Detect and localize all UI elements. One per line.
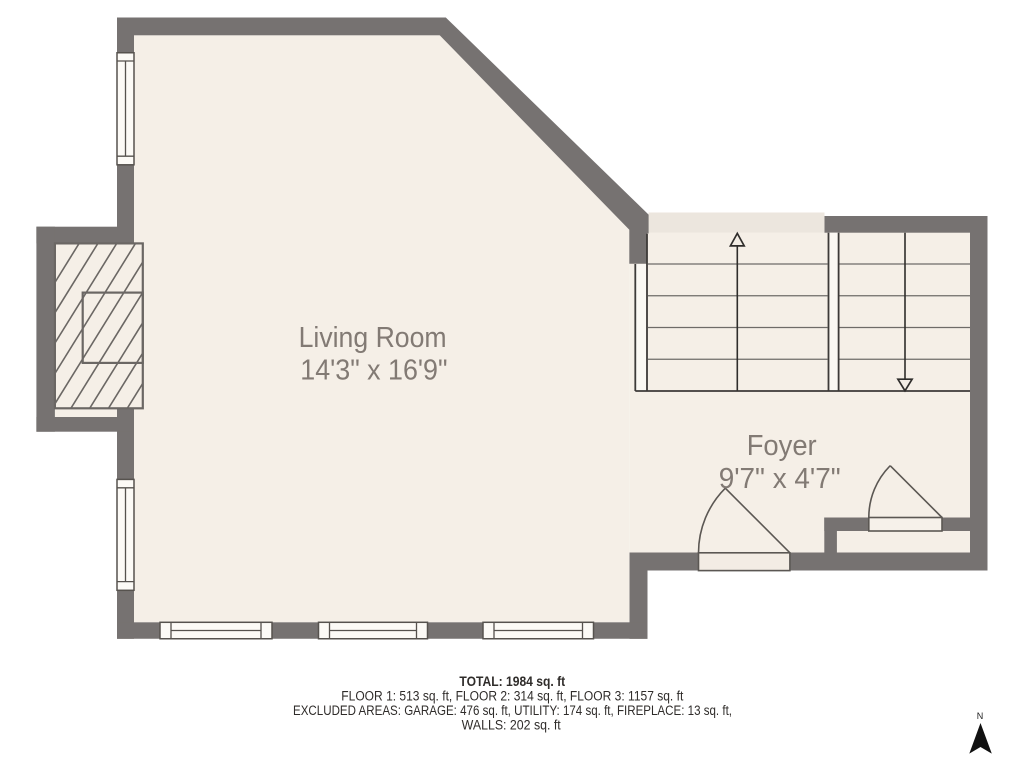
svg-text:9'7" x 4'7": 9'7" x 4'7" <box>719 463 841 495</box>
svg-text:TOTAL: 1984 sq. ft: TOTAL: 1984 sq. ft <box>459 674 565 689</box>
svg-text:FLOOR 1: 513 sq. ft, FLOOR 2:: FLOOR 1: 513 sq. ft, FLOOR 2: 314 sq. ft… <box>341 689 683 704</box>
svg-text:N: N <box>977 711 984 721</box>
svg-text:14'3" x 16'9": 14'3" x 16'9" <box>300 355 447 387</box>
svg-text:WALLS: 202 sq. ft: WALLS: 202 sq. ft <box>462 718 561 733</box>
svg-text:Foyer: Foyer <box>747 430 817 462</box>
svg-text:Living Room: Living Room <box>299 322 447 354</box>
svg-text:EXCLUDED AREAS: GARAGE: 476 sq: EXCLUDED AREAS: GARAGE: 476 sq. ft, UTIL… <box>293 703 732 718</box>
